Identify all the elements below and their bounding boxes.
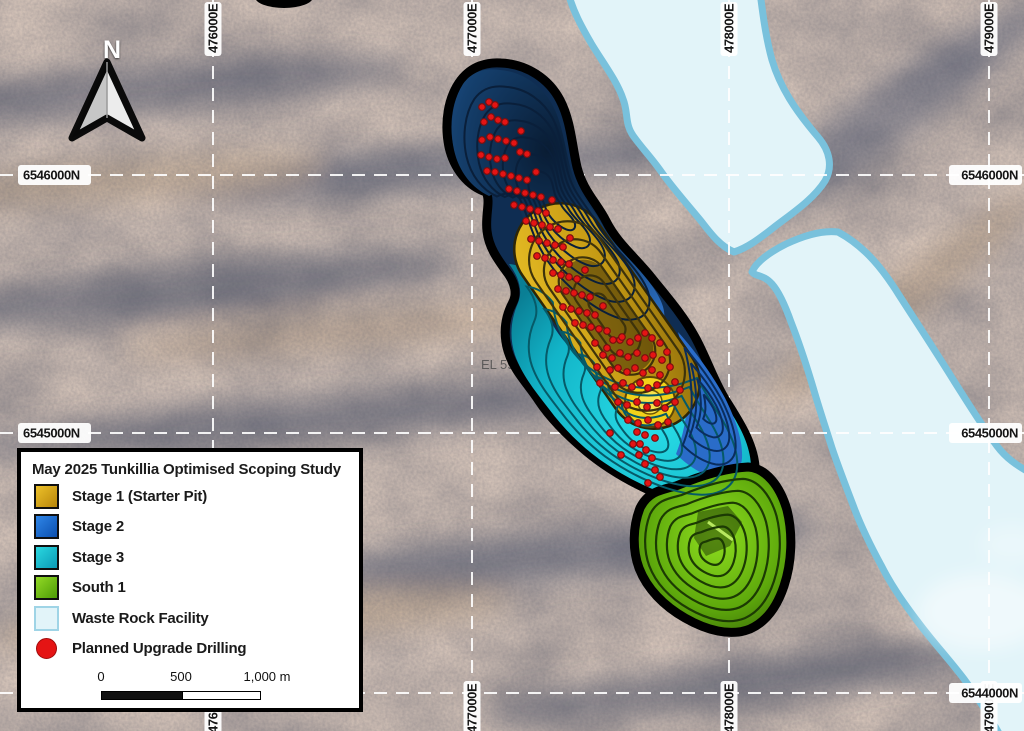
legend-item-south1: South 1	[21, 573, 359, 604]
legend-title: May 2025 Tunkillia Optimised Scoping Stu…	[21, 452, 359, 481]
legend-item-drilling: Planned Upgrade Drilling	[21, 634, 359, 665]
legend-item-stage2: Stage 2	[21, 512, 359, 543]
south1-swatch-icon	[34, 575, 59, 600]
stage2-swatch-icon	[34, 514, 59, 539]
svg-text:479000E: 479000E	[982, 3, 997, 53]
svg-text:476000E: 476000E	[206, 3, 221, 53]
scale-tick-1000: 1,000 m	[244, 669, 291, 684]
legend-item-stage1: Stage 1 (Starter Pit)	[21, 481, 359, 512]
svg-text:6545000N: 6545000N	[23, 426, 80, 441]
svg-text:6545000N: 6545000N	[961, 426, 1018, 441]
svg-text:6544000N: 6544000N	[961, 686, 1018, 701]
scale-tick-0: 0	[97, 669, 104, 684]
scale-tick-500: 500	[170, 669, 192, 684]
legend-item-stage3: Stage 3	[21, 542, 359, 573]
scale-bar: 0 500 1,000 m	[21, 669, 359, 713]
drill-dot-icon	[36, 638, 57, 659]
svg-text:477000E: 477000E	[465, 3, 480, 53]
stage3-swatch-icon	[34, 545, 59, 570]
waste-rock-swatch-icon	[34, 606, 59, 631]
svg-text:478000E: 478000E	[722, 3, 737, 53]
svg-text:477000E: 477000E	[465, 683, 480, 731]
legend-item-waste-rock: Waste Rock Facility	[21, 603, 359, 634]
svg-text:478000E: 478000E	[722, 683, 737, 731]
stage1-swatch-icon	[34, 484, 59, 509]
svg-text:6546000N: 6546000N	[961, 168, 1018, 183]
scale-bar-graphic	[101, 691, 261, 700]
map-legend: May 2025 Tunkillia Optimised Scoping Stu…	[17, 448, 363, 712]
map-viewport: EL 590 476000E476000E477000E477000E47800…	[0, 0, 1024, 731]
svg-text:6546000N: 6546000N	[23, 168, 80, 183]
